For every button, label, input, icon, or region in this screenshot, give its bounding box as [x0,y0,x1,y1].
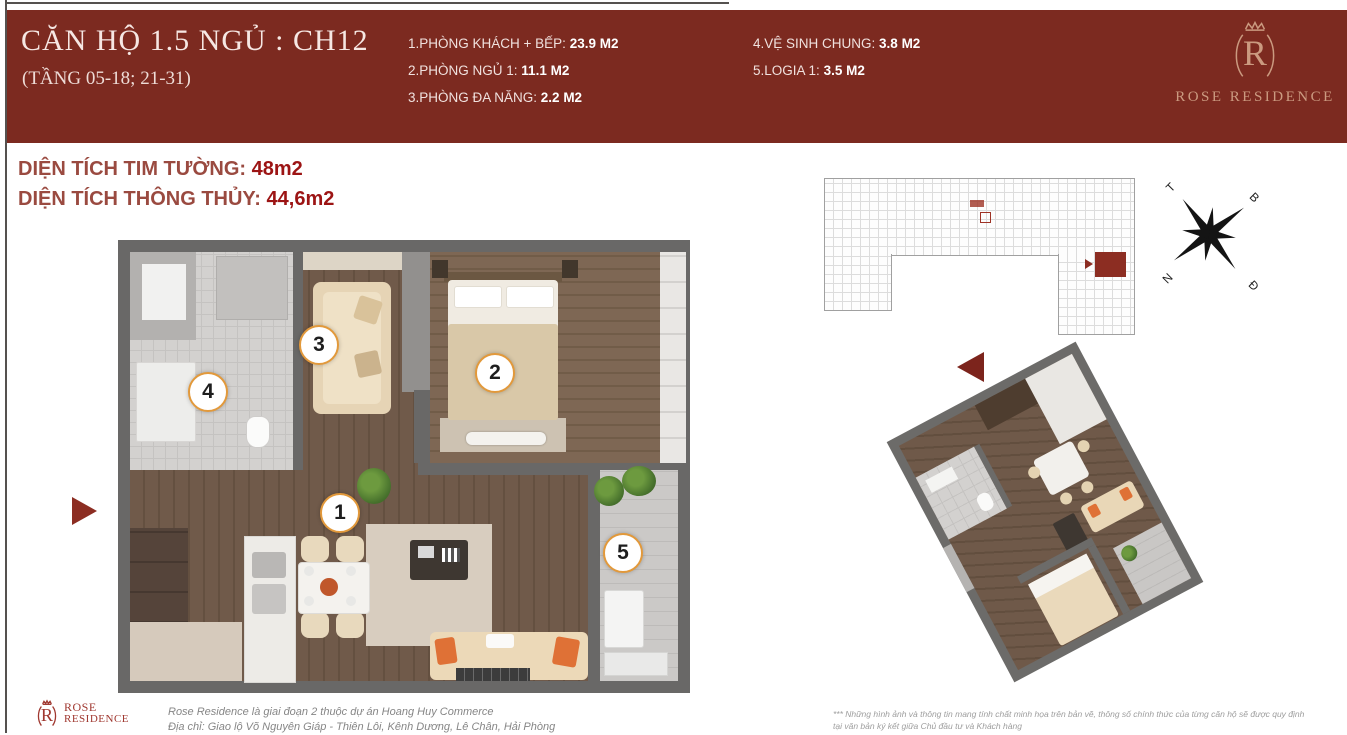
pillow [506,286,554,308]
compass-star-icon: T B N Đ [1152,172,1267,294]
floorplan-2d: 1 2 3 4 5 [118,240,690,693]
room-item: 1.PHÒNG KHÁCH + BẾP: 23.9 M2 [408,36,618,51]
page-edge-line-top [5,2,729,4]
room-list-col2: 4.VỆ SINH CHUNG: 3.8 M2 5.LOGIA 1: 3.5 M… [753,36,920,90]
plate [346,596,356,606]
kitchen-sink [252,584,286,614]
footer-brand-logo: R ROSE RESIDENCE [34,697,129,729]
room-value: 3.8 M2 [879,36,920,51]
pillow [354,350,382,378]
area-label: DIỆN TÍCH TIM TƯỜNG: [18,158,246,180]
compass-label-east: Đ [1246,278,1262,294]
shower-tray [216,256,288,320]
area-line-tim-tuong: DIỆN TÍCH TIM TƯỜNG: 48m2 [18,154,334,184]
wall [414,390,430,463]
compass-label-south: N [1160,270,1176,286]
room-label: 5.LOGIA 1: [753,63,820,78]
wall [293,252,303,470]
room-number-badge-1: 1 [320,493,360,533]
footer-disclaimer: *** Những hình ảnh và thông tin mang tín… [833,708,1304,732]
room-value: 23.9 M2 [570,36,619,51]
washing-machine [604,590,644,648]
area-value: 48m2 [252,158,303,180]
room-number-badge-3: 3 [299,325,339,365]
dining-chair [301,612,329,638]
room-item: 2.PHÒNG NGỦ 1: 11.1 M2 [408,63,618,78]
footer-brand-line2: RESIDENCE [64,713,129,725]
compass-rose: T B N Đ [1152,172,1267,294]
plant [594,476,624,506]
room3-cabinet [303,252,403,270]
room-value: 11.1 M2 [521,63,569,78]
room-label: 1.PHÒNG KHÁCH + BẾP: [408,36,566,51]
brochure-page: { "header": { "title": "CĂN HỘ 1.5 NGỦ :… [0,0,1347,733]
room-number-badge-4: 4 [188,372,228,412]
door-mat [456,668,530,681]
kitchen-sink [252,552,286,578]
toilet [246,416,270,448]
room-label: 4.VỆ SINH CHUNG: [753,36,875,51]
area-label: DIỆN TÍCH THÔNG THỦY: [18,188,261,210]
nightstand [562,260,578,278]
room-item: 5.LOGIA 1: 3.5 M2 [753,63,920,78]
room-number-badge-2: 2 [475,353,515,393]
orange-pillow [434,637,457,666]
bedroom-wardrobe [660,252,686,463]
highlighted-unit [1095,252,1126,277]
svg-text:R: R [1243,33,1267,73]
floor-range-subtitle: (TẦNG 05-18; 21-31) [22,68,191,90]
room-value: 3.5 M2 [824,63,865,78]
room-list-col1: 1.PHÒNG KHÁCH + BẾP: 23.9 M2 2.PHÒNG NGỦ… [408,36,618,117]
room-label: 2.PHÒNG NGỦ 1: [408,63,518,78]
dining-chair [336,536,364,562]
footer-brand-line1: ROSE [64,701,129,713]
plant [357,468,391,504]
bathroom-vanity [136,362,196,442]
disclaimer-line2: tại văn bản ký kết giữa Chủ đầu tư và Kh… [833,720,1304,732]
plate [304,596,314,606]
building-keyplan [822,172,1140,337]
niche-panel [142,264,186,320]
footer-brand-text: ROSE RESIDENCE [64,701,129,725]
white-pillow [486,634,514,648]
compass-label-west: T [1163,179,1179,195]
room-item: 3.PHÒNG ĐA NĂNG: 2.2 M2 [408,90,618,105]
floorplan-3d-view [887,342,1204,683]
page-title: CĂN HỘ 1.5 NGỦ : CH12 [21,24,369,58]
pillow [454,286,502,308]
chess-board [442,548,460,562]
area-measurements: DIỆN TÍCH TIM TƯỜNG: 48m2 DIỆN TÍCH THÔN… [18,154,334,214]
footer-line1: Rose Residence là giai đoạn 2 thuộc dự á… [168,705,555,720]
footer-project-info: Rose Residence là giai đoạn 2 thuộc dự á… [168,705,555,735]
compass-label-north: B [1247,190,1263,206]
dining-chair [336,612,364,638]
plan-pointer-arrow-icon [72,497,97,525]
dining-chair [301,536,329,562]
svg-text:R: R [41,705,54,725]
nightstand [432,260,448,278]
orange-pillow [552,636,580,668]
brand-name: ROSE RESIDENCE [1175,89,1335,106]
room-label: 3.PHÒNG ĐA NĂNG: [408,90,537,105]
rose-residence-monogram-icon: R [1226,16,1284,82]
view3d-pointer-arrow-icon [957,352,984,382]
rose-residence-monogram-icon: R [34,697,60,729]
disclaimer-line1: *** Những hình ảnh và thông tin mang tín… [833,708,1304,720]
keyplan-core-mark [980,212,991,223]
room-number-badge-5: 5 [603,533,643,573]
keyplan-left-wing [824,254,892,311]
room-value: 2.2 M2 [541,90,582,105]
room-item: 4.VỆ SINH CHUNG: 3.8 M2 [753,36,920,51]
unit-pointer-arrow-icon [1085,259,1093,269]
brand-logo: R ROSE RESIDENCE [1175,16,1335,106]
dish [320,578,338,596]
plant [622,466,656,496]
kitchen-base-cabinet [130,622,242,681]
header-band: CĂN HỘ 1.5 NGỦ : CH12 (TẦNG 05-18; 21-31… [7,10,1347,143]
coffee-table-tray [418,546,434,558]
wardrobe-column [402,252,430,392]
area-value: 44,6m2 [267,188,335,210]
plate [304,566,314,576]
area-line-thong-thuy: DIỆN TÍCH THÔNG THỦY: 44,6m2 [18,184,334,214]
loggia-cabinet [604,652,668,676]
plate [346,566,356,576]
bed-bench [466,432,546,445]
keyplan-core-mark [970,200,984,207]
